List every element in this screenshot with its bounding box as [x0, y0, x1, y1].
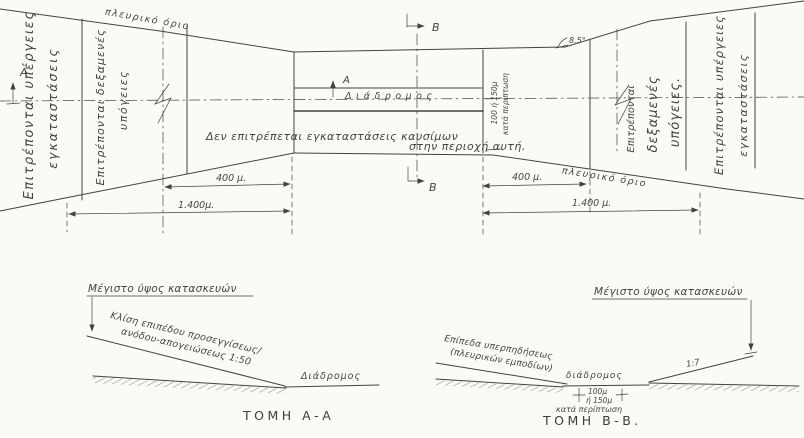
section-aa-title: Μέγιστο ύψος κατασκευών	[88, 283, 237, 295]
section-bb: Μέγιστο ύψος κατασκευών Επίπεδα υπερπηδή…	[436, 286, 799, 428]
section-marker-b-bottom: Β	[408, 167, 437, 194]
section-bb-caption: ΤΟΜΗ Β-Β.	[542, 413, 642, 428]
section-aa: Μέγιστο ύψος κατασκευών Κλίση επιπέδου π…	[87, 283, 379, 423]
section-marker-b-bottom-label: Β	[429, 181, 437, 194]
section-marker-b-top-label: Β	[432, 21, 440, 34]
section-bb-strip-dim-2: ή 150μ	[586, 396, 612, 405]
dimension-1400-right: 1.400 μ.	[483, 198, 698, 213]
zone-note-left-inner-2: υπόγειες	[117, 70, 130, 130]
section-aa-runway-line	[285, 385, 379, 387]
zone-note-right-inner-2: δεξαμενές	[646, 75, 661, 152]
zone-note-right-inner-3: υπόγειες.	[668, 77, 683, 147]
zone-note-right-inner-1: Επιτρέπονται	[625, 85, 637, 152]
strip-width-note-1: 100 ή 150μ	[490, 81, 499, 124]
section-bb-runway-line	[563, 385, 649, 386]
dimension-1400-right-label: 1.400 μ.	[572, 198, 611, 209]
section-marker-a-mid-label: Α	[342, 75, 350, 86]
section-bb-title: Μέγιστο ύψος κατασκευών	[594, 286, 743, 298]
section-bb-right-transitional-plane	[649, 356, 753, 382]
section-bb-slope-ratio: 1:7	[685, 358, 701, 370]
splay-angle: 8.5°	[556, 36, 586, 48]
blueprint-page: Διάδρομος 100 ή 150μ κατά περίπτωση Β Β …	[0, 0, 804, 438]
zone-note-right-outer-2: εγκαταστάσεις	[737, 53, 750, 157]
section-bb-runway-label: διάδρομος	[566, 371, 623, 381]
section-aa-caption: ΤΟΜΗ Α-Α	[242, 408, 334, 423]
dimension-1400-left: 1.400μ.	[69, 200, 290, 214]
zone-note-left-outer-2: εγκαταστάσεις	[45, 47, 60, 168]
section-aa-ground-hatch	[93, 377, 286, 394]
dimension-400-left-label: 400 μ.	[216, 173, 246, 184]
zone-note-left-inner-1: Επιτρέπονται δεξαμενές	[94, 29, 107, 186]
section-marker-b-top: Β	[407, 14, 440, 34]
section-aa-runway-label: Διάδρομος	[300, 371, 361, 382]
section-bb-strip-dim-1: 100μ	[588, 387, 607, 396]
dimension-1400-left-label: 1.400μ.	[178, 200, 214, 211]
section-bb-slope-note: Επίπεδα υπερπηδήσεως (πλευρικών εμποδίων…	[442, 334, 556, 374]
runway-label: Διάδρομος	[344, 91, 437, 102]
section-bb-height-arrow-base	[745, 352, 757, 354]
zone-note-left-outer-1: Επιτρέπονται υπέργειες	[22, 11, 37, 200]
side-limit-label-top: πλευρικό όριο	[104, 7, 191, 33]
zone-note-right-outer-1: Επιτρέπονται υπέργειες	[712, 15, 726, 175]
no-fuel-note-2: στην περιοχή αυτή.	[409, 140, 526, 153]
plan-boundary-top-mid	[294, 47, 565, 52]
section-bb-ground-hatch-left	[436, 380, 563, 393]
splay-angle-label: 8.5°	[569, 36, 586, 45]
plan-boundary-top-right	[565, 1, 804, 47]
plan-boundary-bottom-right	[294, 153, 804, 199]
side-limit-label-bottom: πλευρικό όριο	[561, 165, 648, 189]
section-bb-strip-dimension: 100μ ή 150μ κατά περίπτωση	[556, 387, 628, 414]
strip-width-note-2: κατά περίπτωση	[501, 73, 510, 135]
airport-zoning-drawing: Διάδρομος 100 ή 150μ κατά περίπτωση Β Β …	[0, 0, 804, 438]
plan-view: Διάδρομος 100 ή 150μ κατά περίπτωση Β Β …	[0, 1, 804, 238]
dimension-400-right-label: 400 μ.	[512, 172, 542, 183]
